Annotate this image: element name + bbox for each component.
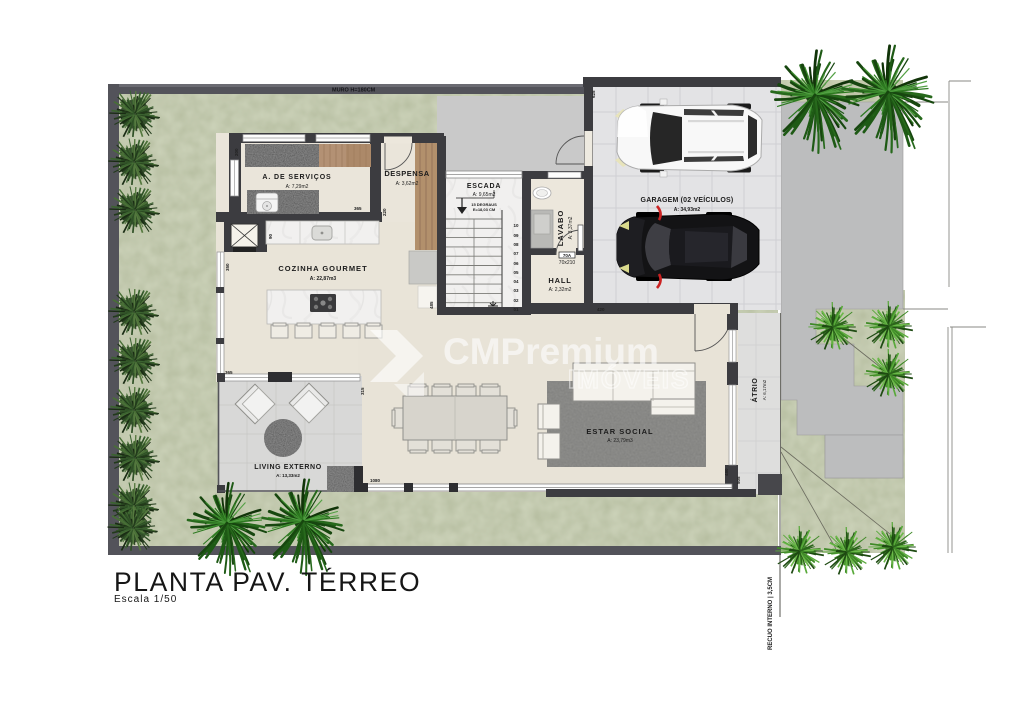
svg-text:A: 34,93m2: A: 34,93m2 xyxy=(674,207,701,213)
svg-text:200: 200 xyxy=(234,148,239,156)
svg-text:GARAGEM (02 VEÍCULOS): GARAGEM (02 VEÍCULOS) xyxy=(641,195,734,204)
svg-text:A: 3,37m2: A: 3,37m2 xyxy=(568,216,574,239)
svg-text:505: 505 xyxy=(736,476,741,484)
svg-text:485: 485 xyxy=(429,301,434,309)
svg-text:70A: 70A xyxy=(563,253,572,258)
svg-text:70x210: 70x210 xyxy=(559,260,576,266)
svg-text:ESCADA: ESCADA xyxy=(467,183,501,190)
svg-text:HALL: HALL xyxy=(548,276,571,285)
svg-text:LAVABO: LAVABO xyxy=(556,210,565,247)
svg-text:04: 04 xyxy=(513,279,519,284)
svg-text:A: 9,65m2: A: 9,65m2 xyxy=(473,192,496,198)
svg-text:ÁTRIO: ÁTRIO xyxy=(750,378,759,403)
svg-text:01: 01 xyxy=(513,307,519,312)
svg-text:A: 22,87m3: A: 22,87m3 xyxy=(310,276,337,282)
svg-text:A: 7,29m2: A: 7,29m2 xyxy=(286,184,309,190)
svg-text:08: 08 xyxy=(513,242,519,247)
svg-text:A: 23,79m3: A: 23,79m3 xyxy=(607,438,633,444)
svg-text:220: 220 xyxy=(382,208,387,216)
svg-text:DESPENSA: DESPENSA xyxy=(384,169,429,178)
svg-text:RECUO INTERNO | 3,5CM: RECUO INTERNO | 3,5CM xyxy=(768,577,774,650)
svg-text:02: 02 xyxy=(513,298,519,303)
svg-text:A: 13,33m2: A: 13,33m2 xyxy=(276,473,300,478)
svg-text:480: 480 xyxy=(724,468,729,476)
svg-text:90: 90 xyxy=(268,233,273,239)
svg-text:05: 05 xyxy=(513,270,519,275)
svg-text:350: 350 xyxy=(225,263,230,271)
svg-text:A. DE SERVIÇOS: A. DE SERVIÇOS xyxy=(262,174,331,181)
svg-text:10: 10 xyxy=(513,223,519,228)
svg-text:A: 2,32m2: A: 2,32m2 xyxy=(549,287,572,293)
svg-text:IMÓVEIS: IMÓVEIS xyxy=(568,364,690,394)
svg-text:315: 315 xyxy=(360,387,365,395)
svg-text:ESTAR SOCIAL: ESTAR SOCIAL xyxy=(586,427,653,436)
svg-text:07: 07 xyxy=(513,251,519,256)
svg-text:A: 3,62m2: A: 3,62m2 xyxy=(396,181,419,187)
svg-text:PLANTA PAV. TÉRREO: PLANTA PAV. TÉRREO xyxy=(114,567,421,597)
svg-text:365: 365 xyxy=(354,206,362,211)
svg-text:1080: 1080 xyxy=(370,478,381,483)
svg-text:03: 03 xyxy=(513,288,519,293)
svg-text:E=18,03 CM: E=18,03 CM xyxy=(473,207,496,212)
svg-text:625: 625 xyxy=(591,90,596,98)
svg-text:COZINHA GOURMET: COZINHA GOURMET xyxy=(278,264,367,273)
svg-text:MURO H=180CM: MURO H=180CM xyxy=(332,88,376,94)
svg-text:LIVING EXTERNO: LIVING EXTERNO xyxy=(254,464,322,471)
svg-text:09: 09 xyxy=(513,233,519,238)
svg-text:A: 6,17m2: A: 6,17m2 xyxy=(762,379,767,400)
svg-text:420: 420 xyxy=(597,307,605,312)
svg-text:Escala 1/50: Escala 1/50 xyxy=(114,594,177,605)
svg-text:365: 365 xyxy=(225,370,233,375)
svg-text:06: 06 xyxy=(513,261,519,266)
